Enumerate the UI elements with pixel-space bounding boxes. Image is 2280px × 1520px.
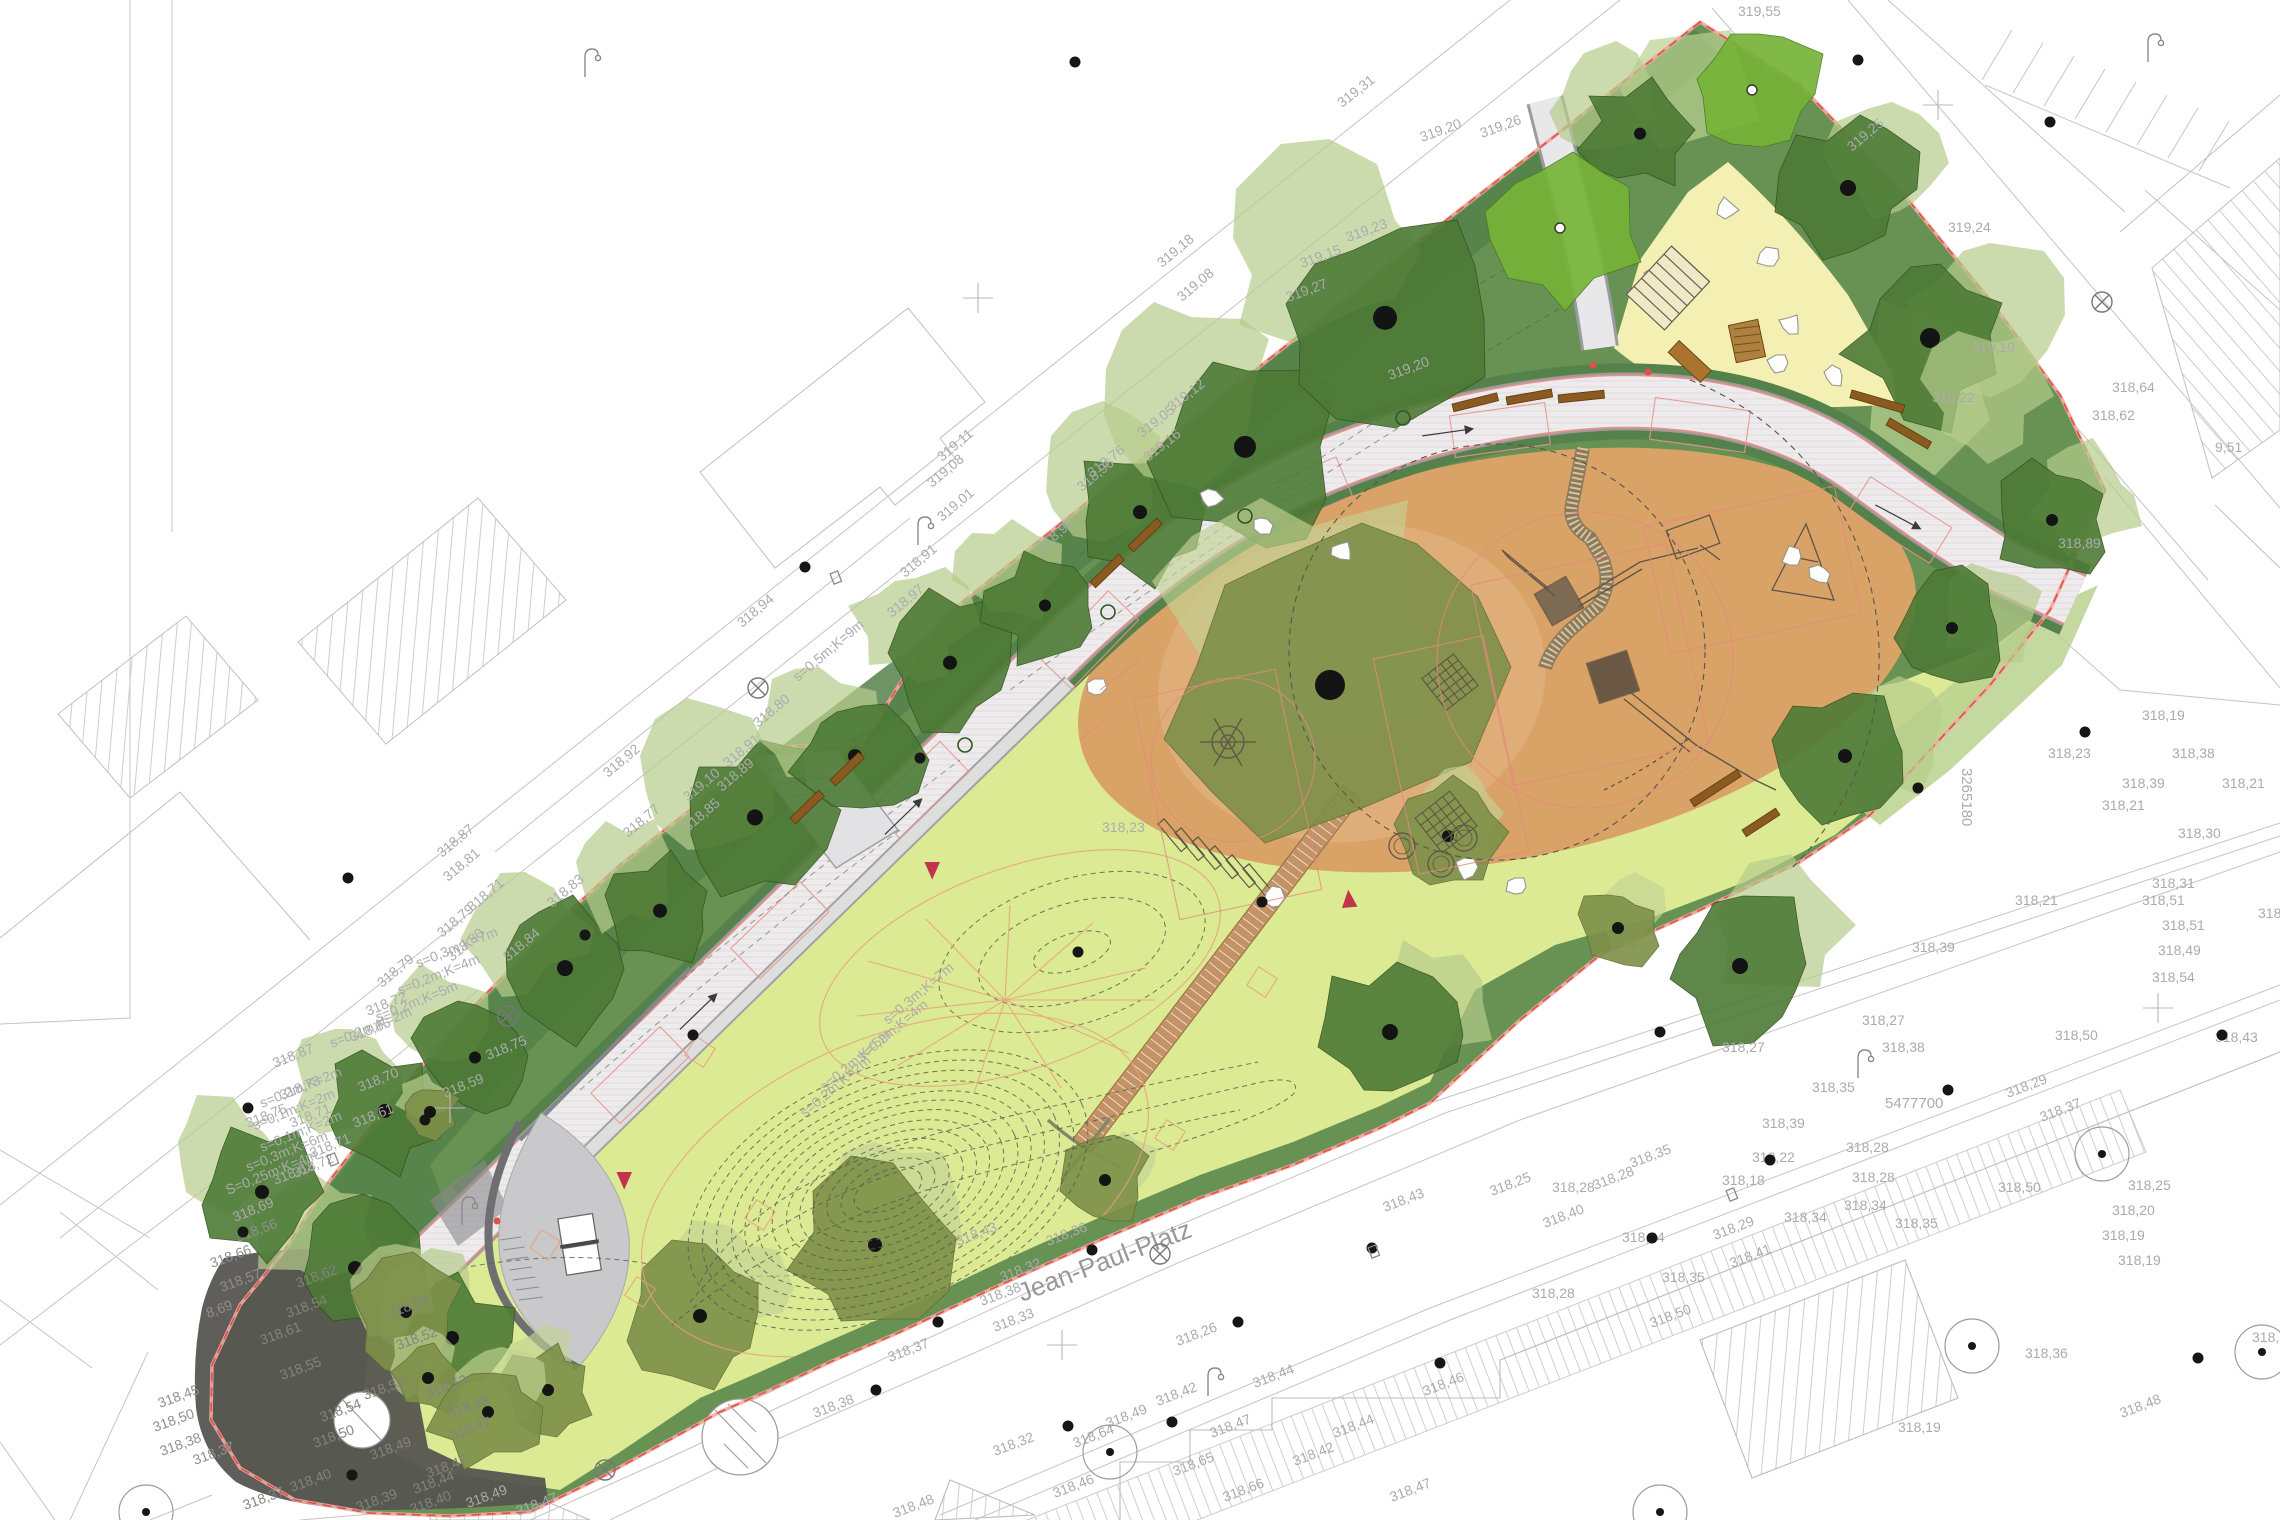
svg-text:318,50: 318,50 [2055,1027,2098,1043]
svg-text:318,38: 318,38 [1882,1039,1925,1055]
svg-text:319,24: 319,24 [1948,219,1991,235]
svg-text:318,19: 318,19 [2118,1252,2161,1268]
svg-text:318,62: 318,62 [2092,407,2135,423]
svg-text:318,24: 318,24 [1622,1229,1665,1245]
svg-text:318,19: 318,19 [2102,1227,2145,1243]
svg-text:318,27: 318,27 [1722,1039,1765,1055]
svg-text:318,20: 318,20 [2112,1202,2155,1218]
svg-text:319,55: 319,55 [1738,3,1781,19]
svg-text:318,18: 318,18 [1722,1172,1765,1188]
svg-text:318,21: 318,21 [2102,797,2145,813]
svg-text:3265180: 3265180 [1958,768,1975,826]
svg-text:318,30: 318,30 [2178,825,2221,841]
svg-text:318,64: 318,64 [2112,379,2155,395]
svg-text:318,21: 318,21 [2015,892,2058,908]
svg-text:318,31: 318,31 [2152,875,2195,891]
svg-text:318,23: 318,23 [2048,745,2091,761]
svg-text:318,35: 318,35 [1812,1079,1855,1095]
svg-text:318,54: 318,54 [2152,969,2195,985]
svg-text:5477700: 5477700 [1885,1095,1943,1112]
svg-text:318,39: 318,39 [1762,1115,1805,1131]
svg-text:318,28: 318,28 [1846,1139,1889,1155]
svg-text:318,34: 318,34 [1844,1197,1887,1213]
svg-text:319,22: 319,22 [1932,389,1975,405]
svg-text:9,51: 9,51 [2215,439,2242,455]
svg-text:318,19: 318,19 [2142,707,2185,723]
svg-text:318,35: 318,35 [1895,1215,1938,1231]
svg-text:318,36: 318,36 [2025,1345,2068,1361]
svg-text:318,34: 318,34 [1784,1209,1827,1225]
svg-text:318,35: 318,35 [1662,1269,1705,1285]
svg-text:318,51: 318,51 [2142,892,2185,908]
svg-text:318,28: 318,28 [1532,1285,1575,1301]
svg-text:318,28: 318,28 [1852,1169,1895,1185]
svg-text:318,51: 318,51 [2162,917,2205,933]
svg-text:318,30: 318,30 [2258,905,2280,921]
svg-text:318,28: 318,28 [1552,1179,1595,1195]
svg-text:319,10: 319,10 [1972,339,2015,355]
svg-text:318,27: 318,27 [1862,1012,1905,1028]
svg-text:318,38: 318,38 [2172,745,2215,761]
svg-text:318,39: 318,39 [1912,939,1955,955]
svg-text:318,19: 318,19 [1898,1419,1941,1435]
svg-text:318,39: 318,39 [2122,775,2165,791]
svg-text:318,89: 318,89 [2058,535,2101,551]
svg-text:318,38: 318,38 [2252,1329,2280,1345]
svg-text:318,49: 318,49 [2158,942,2201,958]
svg-text:318,23: 318,23 [1102,819,1145,835]
svg-text:318,50: 318,50 [1998,1179,2041,1195]
svg-text:318,21: 318,21 [2222,775,2265,791]
svg-text:318,25: 318,25 [2128,1177,2171,1193]
